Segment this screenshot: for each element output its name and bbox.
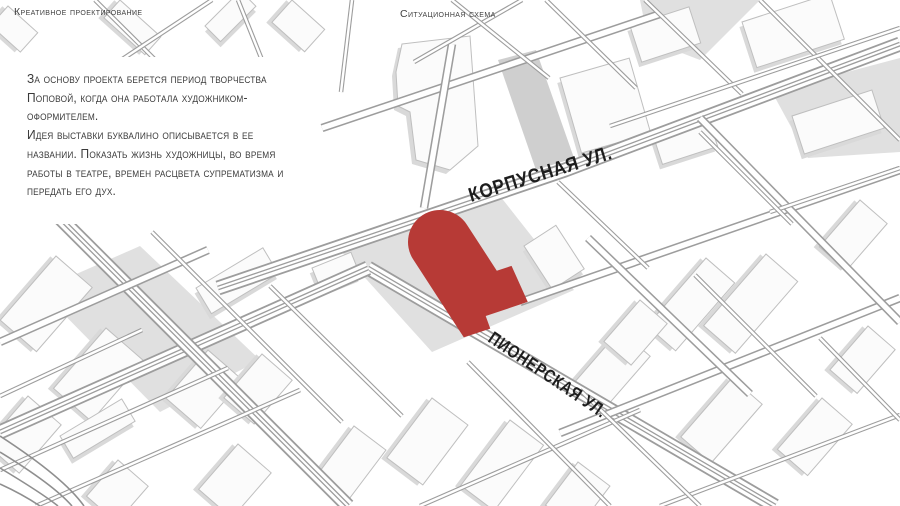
header-course-label: Креативное проектирование xyxy=(14,6,143,18)
slide-canvas: КОРПУСНАЯ УЛ. ПИОНЕРСКАЯ УЛ. Креативное … xyxy=(0,0,900,506)
description-paragraph-2: Идея выставки буквалино описывается в ее… xyxy=(27,126,303,201)
description-text: За основу проекта берется период творчес… xyxy=(27,70,303,201)
description-box: За основу проекта берется период творчес… xyxy=(13,57,318,224)
description-paragraph-1: За основу проекта берется период творчес… xyxy=(27,70,303,126)
header-slide-title: Ситуационная схема xyxy=(400,8,496,20)
